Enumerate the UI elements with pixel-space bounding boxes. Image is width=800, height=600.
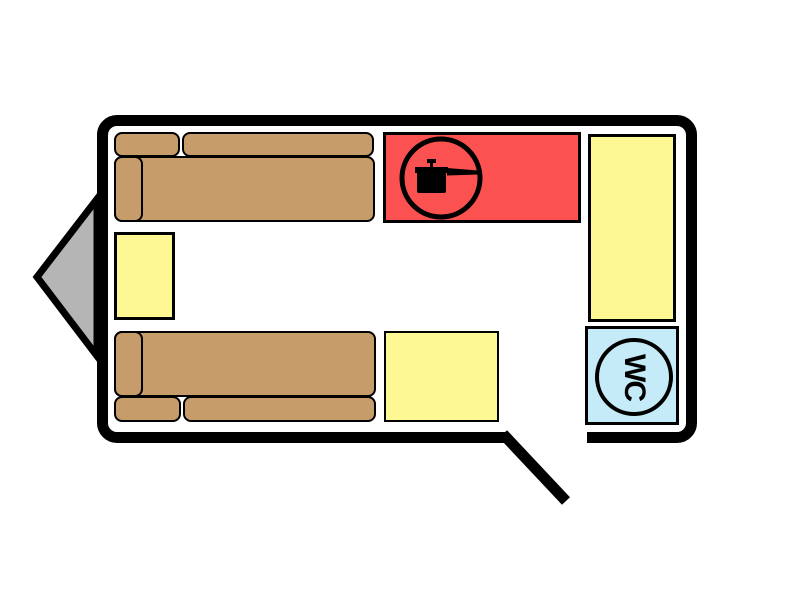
floorplan-canvas: WC	[0, 0, 800, 600]
door-leaf	[0, 0, 800, 600]
